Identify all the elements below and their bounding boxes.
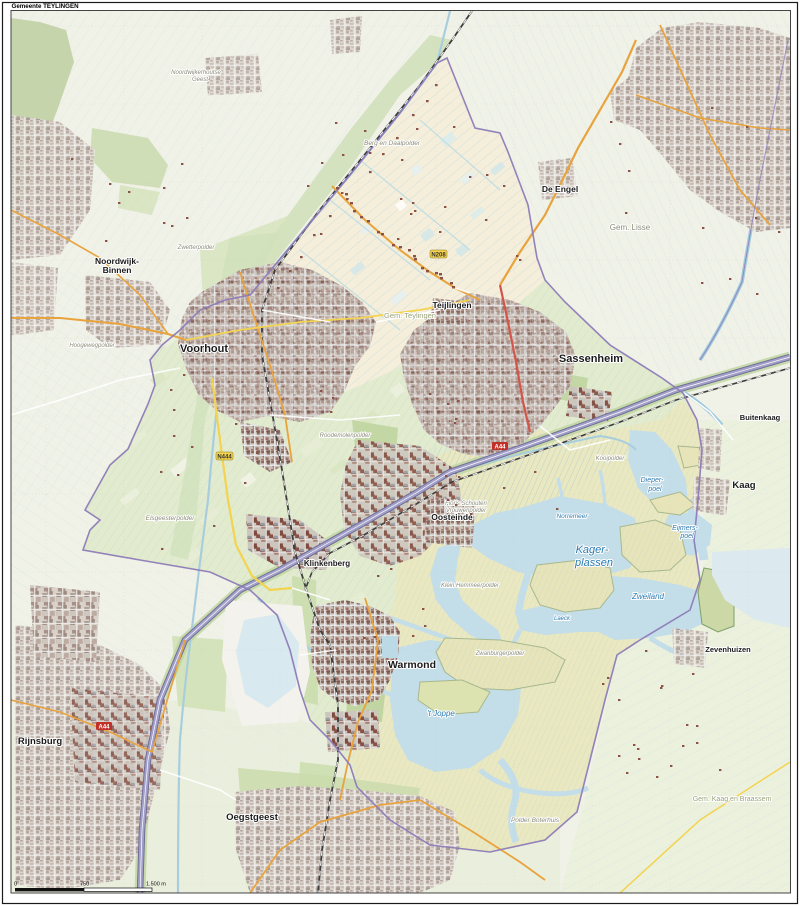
svg-text:Oegstgeest: Oegstgeest <box>226 812 279 823</box>
svg-text:poel: poel <box>679 533 694 540</box>
svg-text:1.500 m: 1.500 m <box>146 882 166 888</box>
svg-text:Zwetterpolder: Zwetterpolder <box>177 245 216 251</box>
svg-text:De Engel: De Engel <box>542 184 578 194</box>
svg-text:Zwanburgerpolder: Zwanburgerpolder <box>475 651 526 657</box>
svg-text:Kooipolder: Kooipolder <box>596 456 626 462</box>
svg-text:Warmond: Warmond <box>388 659 436 671</box>
svg-text:A44: A44 <box>98 725 110 731</box>
svg-text:Buitenkaag: Buitenkaag <box>740 413 781 422</box>
svg-text:Berg en Daalpolder: Berg en Daalpolder <box>364 140 421 147</box>
svg-text:750: 750 <box>80 882 89 888</box>
svg-text:Sassenheim: Sassenheim <box>559 353 623 365</box>
svg-text:N444: N444 <box>217 455 232 461</box>
svg-text:N208: N208 <box>431 253 446 259</box>
svg-text:Geest: Geest <box>192 77 208 83</box>
svg-text:Teijlingen: Teijlingen <box>432 300 471 310</box>
svg-text:Gem. Lisse: Gem. Lisse <box>610 223 651 232</box>
svg-text:Rijnsburg: Rijnsburg <box>18 736 63 747</box>
svg-text:Norremeer: Norremeer <box>556 513 588 520</box>
svg-text:0: 0 <box>14 882 17 888</box>
svg-text:Gem. Teylingen: Gem. Teylingen <box>384 311 436 320</box>
svg-text:Hoogewegpolder: Hoogewegpolder <box>69 343 115 349</box>
svg-text:Elsgeesterpolder: Elsgeesterpolder <box>146 515 196 522</box>
svg-text:Floris Schouten: Floris Schouten <box>445 501 487 507</box>
svg-text:Binnen: Binnen <box>103 265 132 275</box>
svg-text:Zweiland: Zweiland <box>631 592 665 601</box>
svg-text:Polder Boterhuis: Polder Boterhuis <box>511 817 560 824</box>
svg-text:Laeck: Laeck <box>554 616 571 622</box>
svg-text:Zevenhuizen: Zevenhuizen <box>705 645 751 654</box>
svg-text:Voorhout: Voorhout <box>180 343 228 355</box>
svg-text:Kager-: Kager- <box>576 544 609 556</box>
svg-text:Roodemolenpolder: Roodemolenpolder <box>320 433 372 439</box>
svg-text:Gem. Kaag en Braassem: Gem. Kaag en Braassem <box>693 796 772 803</box>
svg-text:'t Joppe: 't Joppe <box>427 709 455 718</box>
svg-text:A44: A44 <box>494 445 506 451</box>
svg-text:Noordwijkerhoutse: Noordwijkerhoutse <box>171 70 221 76</box>
svg-text:poel: poel <box>647 486 662 493</box>
svg-text:Kaag: Kaag <box>732 480 755 491</box>
svg-text:plassen: plassen <box>574 557 613 569</box>
svg-text:Klein Hemmeerpolder: Klein Hemmeerpolder <box>441 583 500 589</box>
svg-text:Klinkenberg: Klinkenberg <box>304 559 350 568</box>
svg-text:Eijmers-: Eijmers- <box>672 525 698 532</box>
svg-text:Gemeente TEYLINGEN: Gemeente TEYLINGEN <box>12 3 80 10</box>
svg-text:Dieper-: Dieper- <box>641 477 664 484</box>
svg-text:Vrouwenpolder: Vrouwenpolder <box>446 508 487 514</box>
